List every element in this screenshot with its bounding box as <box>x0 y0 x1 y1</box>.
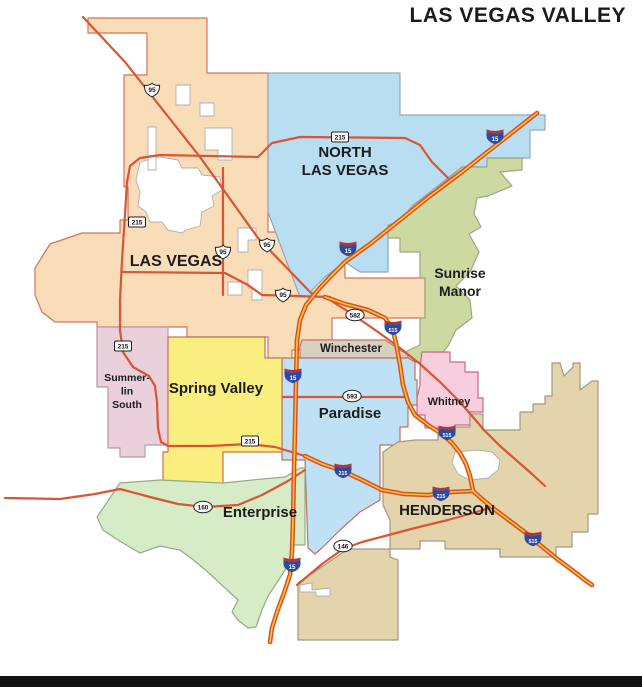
shield-label: 215 <box>132 219 143 226</box>
label-paradise: Paradise <box>319 405 382 422</box>
enclave <box>148 127 156 170</box>
label-las-vegas: LAS VEGAS <box>130 253 223 270</box>
shield-label: 15 <box>492 137 499 143</box>
shield-label: 515 <box>389 328 398 334</box>
shield-label: 215 <box>437 494 446 500</box>
shield-label: 95 <box>279 292 287 299</box>
shield-label: 15 <box>289 565 296 571</box>
shield-label: 95 <box>263 242 271 249</box>
shield-label: 215 <box>335 134 346 141</box>
label-winchester: Winchester <box>320 343 382 355</box>
oval-route-shield-582: 582 <box>346 309 364 321</box>
oval-route-shield-593: 593 <box>343 390 361 402</box>
shield-label: 582 <box>350 312 361 319</box>
map-title: LAS VEGAS VALLEY <box>410 4 626 28</box>
rect-route-shield-215: 215 <box>332 132 349 142</box>
shield-label: 146 <box>338 543 349 550</box>
las-vegas-valley-map: 9595959521521521521515151515515515515215… <box>0 0 642 689</box>
shield-label: 160 <box>198 504 209 511</box>
rect-route-shield-215: 215 <box>115 341 132 351</box>
enclave <box>228 282 242 295</box>
shield-label: 515 <box>529 539 538 545</box>
label-henderson: HENDERSON <box>399 502 495 519</box>
oval-route-shield-160: 160 <box>194 501 212 513</box>
region-spring-valley <box>163 337 282 490</box>
shield-label: 215 <box>339 471 348 477</box>
map-stage: 9595959521521521521515151515515515515215… <box>0 0 642 689</box>
interstate-route-shield-15: 15 <box>284 558 301 573</box>
shield-label: 15 <box>290 376 297 382</box>
oval-route-shield-146: 146 <box>334 540 352 552</box>
rect-route-shield-215: 215 <box>242 436 259 446</box>
shield-label: 593 <box>347 393 358 400</box>
enclave <box>176 85 190 105</box>
label-whitney: Whitney <box>428 396 472 408</box>
shield-label: 215 <box>118 343 129 350</box>
rect-route-shield-215: 215 <box>129 217 146 227</box>
shield-label: 95 <box>148 87 156 94</box>
footer-bar <box>0 676 642 687</box>
shield-label: 215 <box>245 438 256 445</box>
label-spring-valley: Spring Valley <box>169 380 264 397</box>
label-enterprise: Enterprise <box>223 504 297 521</box>
interstate-route-shield-515: 515 <box>385 321 402 336</box>
shield-label: 15 <box>345 249 352 255</box>
shield-label: 515 <box>443 433 452 439</box>
enclave <box>200 103 214 116</box>
